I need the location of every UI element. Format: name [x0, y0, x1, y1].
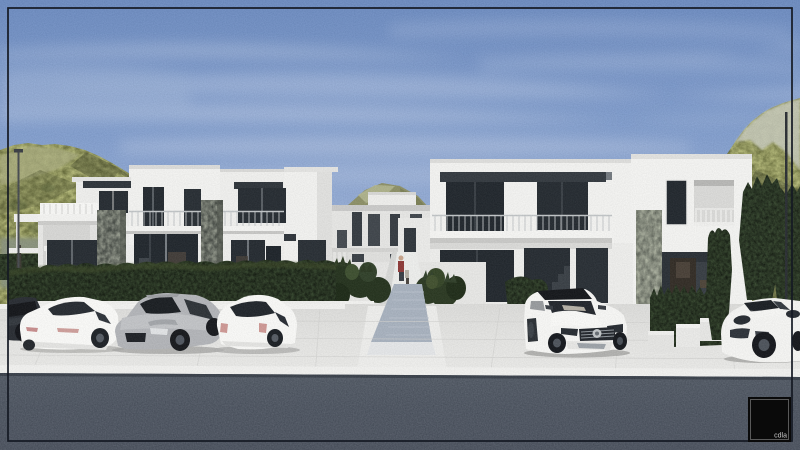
svg-text:cdla: cdla [774, 433, 787, 440]
